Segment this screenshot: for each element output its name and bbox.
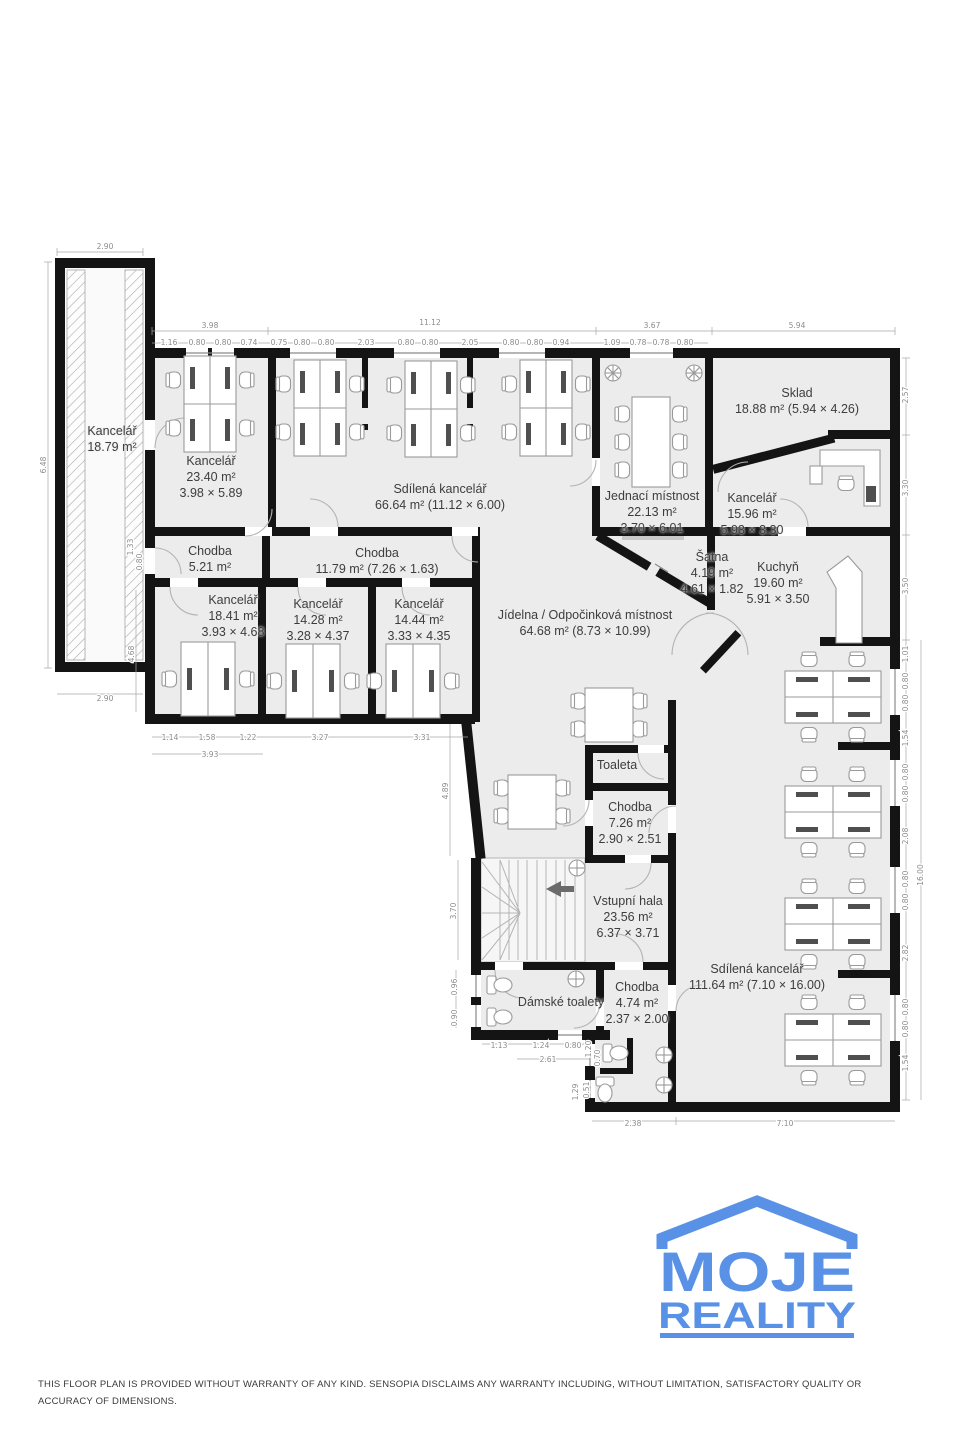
dim-label: 3.30 <box>901 479 910 496</box>
room-area: 18.41 m² <box>202 608 265 624</box>
room-area: 14.44 m² <box>388 612 451 628</box>
room-label-chodba-1179: Chodba 11.79 m² (7.26 × 1.63) <box>315 545 438 577</box>
room-size: 3.28 × 4.37 <box>287 628 350 644</box>
room-name: Chodba <box>188 543 232 559</box>
logo-word-reality: REALITY <box>658 1295 856 1336</box>
room-area: 5.21 m² <box>188 559 232 575</box>
dim-label: 1.33 <box>126 538 135 555</box>
disclaimer-text: THIS FLOOR PLAN IS PROVIDED WITHOUT WARR… <box>38 1376 916 1410</box>
dim-label: 1.01 <box>901 645 910 662</box>
dim-label: 0.80 <box>398 338 415 347</box>
room-label-sdilena-kancelar-6664: Sdílená kancelář 66.64 m² (11.12 × 6.00) <box>375 481 505 513</box>
dim-label: 2.61 <box>540 1055 557 1064</box>
room-label-jednaci-mistnost: Jednací místnost 22.13 m² 3.70 × 6.01 <box>605 488 700 536</box>
room-label-kuchyn: Kuchyň 19.60 m² 5.91 × 3.50 <box>747 559 810 607</box>
floor-plan-page: 2.90 3.98 11.12 3.67 5.94 1.16 0.80 0.80… <box>0 0 960 1440</box>
room-name: Kancelář <box>180 453 243 469</box>
room-label-toaleta: Toaleta <box>597 757 637 773</box>
room-size: 4.61 × 1.82 <box>681 581 744 597</box>
room-size: 5.91 × 3.50 <box>747 591 810 607</box>
dim-label: 4.68 <box>127 645 136 662</box>
room-area: 22.13 m² <box>605 504 700 520</box>
room-name: Jednací místnost <box>605 488 700 504</box>
dim-label: 2.03 <box>358 338 375 347</box>
dim-label: 2.82 <box>901 944 910 961</box>
dim-label: 0.94 <box>553 338 570 347</box>
dim-label: 0.75 <box>271 338 288 347</box>
room-label-sklad: Sklad 18.88 m² (5.94 × 4.26) <box>735 385 859 417</box>
dim-label: 0.80 <box>901 785 910 802</box>
dim-label: 0.80 <box>901 763 910 780</box>
floor-plan-drawing: 2.90 3.98 11.12 3.67 5.94 1.16 0.80 0.80… <box>0 0 960 1440</box>
dim-label: 0.80 <box>215 338 232 347</box>
room-label-vstupni-hala: Vstupní hala 23.56 m² 6.37 × 3.71 <box>593 893 663 941</box>
dim-label: 0.96 <box>450 978 459 995</box>
dim-label: 0.80 <box>901 998 910 1015</box>
dim-label: 1.29 <box>571 1083 580 1100</box>
dim-label: 1.54 <box>901 1054 910 1071</box>
toilet-icon <box>487 976 512 994</box>
dim-label: 2.05 <box>462 338 479 347</box>
dim-label: 0.80 <box>318 338 335 347</box>
dim-label: 0.80 <box>503 338 520 347</box>
conference-table-icon <box>615 397 687 487</box>
room-area: 23.40 m² <box>180 469 243 485</box>
logo-word-moje: MOJE <box>659 1240 855 1303</box>
dim-label: 1.22 <box>240 733 257 742</box>
dim-label: 3.31 <box>414 733 431 742</box>
dim-label: 2.08 <box>901 827 910 844</box>
sink-icon <box>656 1077 672 1093</box>
room-size: 2.90 × 2.51 <box>599 831 662 847</box>
dim-label: 0.70 <box>593 1049 602 1066</box>
dim-label: 2.90 <box>97 242 114 251</box>
room-name: Kancelář <box>202 592 265 608</box>
dim-label: 1.20 <box>584 1040 593 1057</box>
room-area: 11.79 m² (7.26 × 1.63) <box>315 561 438 577</box>
room-size: 3.93 × 4.68 <box>202 624 265 640</box>
dim-label: 0.80 <box>565 1041 582 1050</box>
sink-icon <box>569 860 585 876</box>
dim-label: 0.51 <box>582 1081 591 1098</box>
room-size: 6.37 × 3.71 <box>593 925 663 941</box>
room-area: 23.56 m² <box>593 909 663 925</box>
room-area: 7.26 m² <box>599 815 662 831</box>
dim-label: 1.24 <box>533 1041 550 1050</box>
dim-label: 6.48 <box>39 456 48 473</box>
dim-label: 1.16 <box>161 338 178 347</box>
dim-label: 0.80 <box>901 1020 910 1037</box>
room-name: Chodba <box>315 545 438 561</box>
dim-label: 1.14 <box>162 733 179 742</box>
dim-label: 3.67 <box>644 321 661 330</box>
dim-label: 7.10 <box>777 1119 794 1128</box>
room-name: Kancelář <box>721 490 784 506</box>
dim-label: 1.13 <box>491 1041 508 1050</box>
room-area: 66.64 m² (11.12 × 6.00) <box>375 497 505 513</box>
dim-label: 0.80 <box>901 893 910 910</box>
room-name: Sklad <box>735 385 859 401</box>
dim-label: 2.38 <box>625 1119 642 1128</box>
room-area: 111.64 m² (7.10 × 16.00) <box>689 977 825 993</box>
dim-label: 3.98 <box>202 321 219 330</box>
dim-label: 3.27 <box>312 733 329 742</box>
room-size: 3.70 × 6.01 <box>605 520 700 536</box>
dim-label: 3.70 <box>449 902 458 919</box>
dim-label: 0.80 <box>294 338 311 347</box>
dim-label: 4.89 <box>441 782 450 799</box>
dim-label: 0.80 <box>189 338 206 347</box>
dim-label: 0.80 <box>901 870 910 887</box>
room-area: 19.60 m² <box>747 575 810 591</box>
dim-label: 0.80 <box>677 338 694 347</box>
room-name: Sdílená kancelář <box>375 481 505 497</box>
room-label-kancelar-terasa: Kancelář 18.79 m² <box>87 423 136 455</box>
room-size: 2.37 × 2.00 <box>606 1011 669 1027</box>
brand-logo: MOJE REALITY <box>658 1201 856 1338</box>
room-area: 64.68 m² (8.73 × 10.99) <box>498 623 672 639</box>
dim-label: 0.80 <box>901 672 910 689</box>
room-name: Kancelář <box>287 596 350 612</box>
dim-label: 0.80 <box>135 553 144 570</box>
room-name: Šatna <box>681 549 744 565</box>
dim-label: 11.12 <box>419 318 441 327</box>
plant-icon <box>605 365 621 381</box>
dim-label: 2.57 <box>901 386 910 403</box>
dim-label: 2.90 <box>97 694 114 703</box>
room-name: Kuchyň <box>747 559 810 575</box>
room-name: Chodba <box>599 799 662 815</box>
room-area: 18.79 m² <box>87 439 136 455</box>
room-label-satna: Šatna 4.19 m² 4.61 × 1.82 <box>681 549 744 597</box>
plant-icon <box>686 365 702 381</box>
dim-label: 0.80 <box>901 694 910 711</box>
room-label-kancelar-2340: Kancelář 23.40 m² 3.98 × 5.89 <box>180 453 243 501</box>
room-name: Sdílená kancelář <box>689 961 825 977</box>
toilet-icon <box>603 1044 628 1062</box>
room-name: Dámské toalety <box>518 994 604 1010</box>
dim-label: 0.80 <box>527 338 544 347</box>
room-area: 4.19 m² <box>681 565 744 581</box>
room-area: 18.88 m² (5.94 × 4.26) <box>735 401 859 417</box>
room-name: Toaleta <box>597 757 637 773</box>
room-name: Chodba <box>606 979 669 995</box>
room-name: Kancelář <box>87 423 136 439</box>
room-label-kancelar-1444: Kancelář 14.44 m² 3.33 × 4.35 <box>388 596 451 644</box>
room-name: Vstupní hala <box>593 893 663 909</box>
dim-label: 1.58 <box>199 733 216 742</box>
sink-icon <box>656 1047 672 1063</box>
dim-label: 5.94 <box>789 321 806 330</box>
room-area: 14.28 m² <box>287 612 350 628</box>
room-label-kancelar-1596: Kancelář 15.96 m² 5.93 × 3.30 <box>721 490 784 538</box>
logo-underline <box>660 1333 854 1338</box>
dim-label: 0.80 <box>422 338 439 347</box>
dim-label: 0.90 <box>450 1009 459 1026</box>
dim-label: 0.78 <box>653 338 670 347</box>
room-label-kancelar-1428: Kancelář 14.28 m² 3.28 × 4.37 <box>287 596 350 644</box>
dim-label: 0.78 <box>630 338 647 347</box>
room-label-kancelar-1841: Kancelář 18.41 m² 3.93 × 4.68 <box>202 592 265 640</box>
room-name: Jídelna / Odpočinková místnost <box>498 607 672 623</box>
room-label-damske-toalety: Dámské toalety <box>518 994 604 1010</box>
room-label-chodba-726: Chodba 7.26 m² 2.90 × 2.51 <box>599 799 662 847</box>
room-area: 4.74 m² <box>606 995 669 1011</box>
dim-label: 3.50 <box>901 577 910 594</box>
room-size: 3.98 × 5.89 <box>180 485 243 501</box>
sink-icon <box>568 971 584 987</box>
dim-label: 16.00 <box>916 864 925 886</box>
room-label-chodba-521: Chodba 5.21 m² <box>188 543 232 575</box>
room-size: 5.93 × 3.30 <box>721 522 784 538</box>
dim-label: 1.54 <box>901 729 910 746</box>
room-label-sdilena-kancelar-11164: Sdílená kancelář 111.64 m² (7.10 × 16.00… <box>689 961 825 993</box>
room-area: 15.96 m² <box>721 506 784 522</box>
dim-label: 0.74 <box>241 338 258 347</box>
room-label-jidelna: Jídelna / Odpočinková místnost 64.68 m² … <box>498 607 672 639</box>
dim-label: 1.09 <box>604 338 621 347</box>
toilet-icon <box>487 1008 512 1026</box>
room-size: 3.33 × 4.35 <box>388 628 451 644</box>
room-name: Kancelář <box>388 596 451 612</box>
toilet-icon <box>596 1077 614 1102</box>
dim-label: 3.93 <box>202 750 219 759</box>
room-label-chodba-474: Chodba 4.74 m² 2.37 × 2.00 <box>606 979 669 1027</box>
